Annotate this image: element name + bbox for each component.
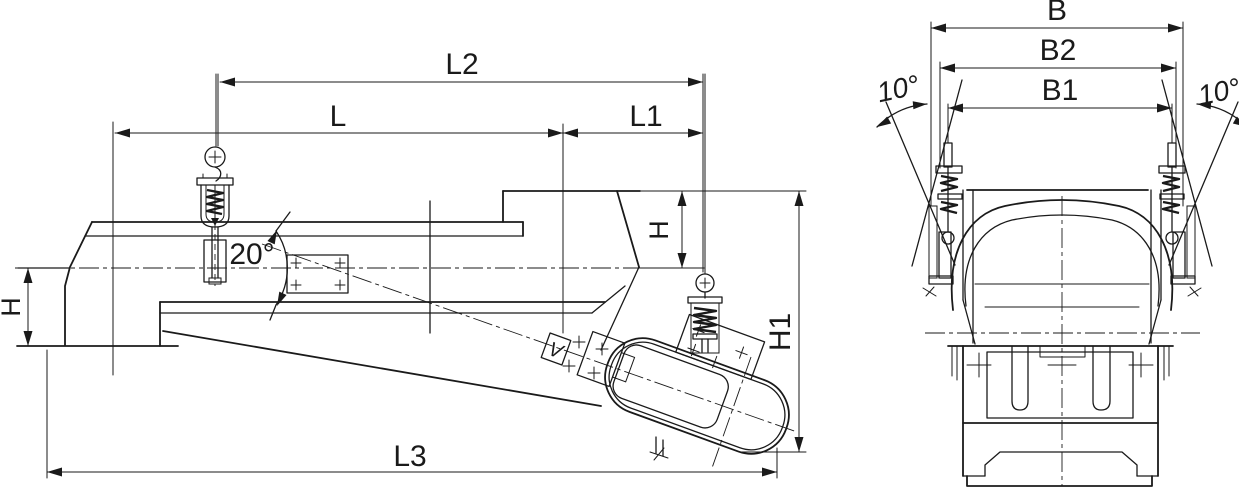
- dim-l1: L1: [563, 100, 703, 138]
- dim-label-b: B: [1047, 0, 1067, 27]
- v-marker: V: [541, 333, 571, 365]
- angle-10-right: 10°: [1195, 72, 1239, 130]
- dim-label-h-left: H: [0, 297, 26, 317]
- angle-label-10-right: 10°: [1195, 72, 1239, 111]
- spring-coil-icon: [941, 176, 957, 191]
- angle-label-20: 20°: [229, 238, 274, 271]
- side-view: V L2 L L1 L3: [0, 48, 812, 478]
- feeder-dimensional-drawing: V L2 L L1 L3: [0, 0, 1239, 487]
- drawing-canvas: V L2 L L1 L3: [0, 0, 1239, 487]
- dim-h1: H1: [740, 191, 806, 452]
- dim-label-b2: B2: [1040, 34, 1077, 67]
- dim-l3: L3: [47, 350, 777, 478]
- dim-label-l1: L1: [629, 100, 662, 133]
- side-centerlines: [15, 244, 797, 468]
- hanger-left: [197, 74, 233, 286]
- junction-box: [287, 255, 348, 293]
- dim-label-b1: B1: [1042, 74, 1079, 107]
- dim-h-right: H: [634, 191, 704, 268]
- suspension-right: [1159, 104, 1185, 244]
- angle-20: 20°: [229, 212, 290, 320]
- end-view: B B2 B1 10° 10°: [874, 0, 1239, 486]
- magnet-housing: [952, 346, 1169, 486]
- dim-label-l: L: [330, 100, 347, 133]
- spring-coil-icon: [1163, 202, 1179, 213]
- dim-label-h1: H1: [764, 313, 797, 351]
- dim-label-l3: L3: [393, 440, 426, 473]
- dim-label-h-right: H: [644, 220, 674, 240]
- hook-eye-icon: [1166, 232, 1178, 244]
- spring-coil-icon: [941, 202, 957, 213]
- dim-b1: B1: [948, 74, 1172, 113]
- drive-feet: [650, 437, 668, 460]
- spring-coil-icon: [1163, 176, 1179, 191]
- dim-l: L: [113, 100, 703, 375]
- end-trough: [948, 190, 1173, 346]
- angle-10-left: 10°: [874, 69, 927, 130]
- hanger-right: [688, 74, 722, 353]
- dim-h-left: H: [0, 268, 33, 346]
- dim-label-l2: L2: [445, 48, 478, 81]
